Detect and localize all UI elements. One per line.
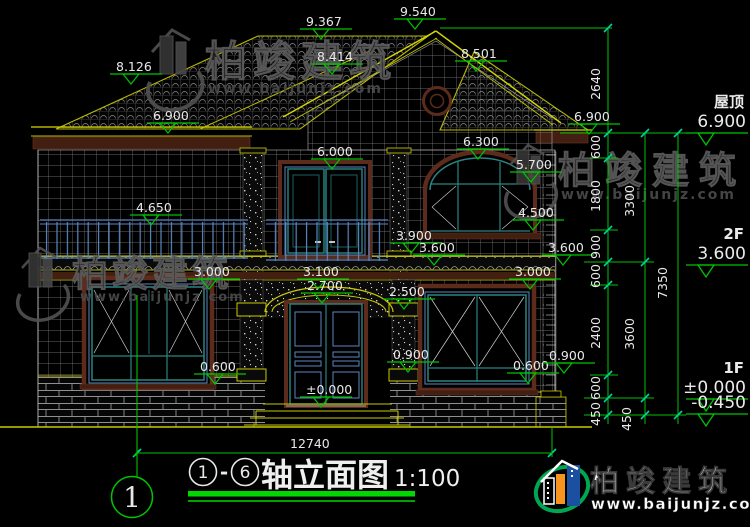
window-1f-right	[416, 286, 538, 395]
eave-fascia-left	[33, 137, 250, 149]
level-marker-label: 6.000	[317, 144, 353, 159]
chain-dim-label: 450	[619, 407, 634, 431]
level-marker-label: 3.000	[515, 264, 551, 279]
chain-dim-label: 600	[588, 264, 603, 288]
logo-building-white	[544, 478, 554, 504]
chain-dim-label: 600	[588, 376, 603, 400]
storey-floor-label: 屋顶	[714, 93, 744, 111]
level-marker-label: 0.900	[549, 348, 585, 363]
brand-logo: 柏竣建筑 www.baijunjz.com	[529, 459, 750, 519]
title-block: 1 - 6 轴立面图 1:100	[188, 456, 460, 501]
logo-url: www.baijunjz.com	[591, 495, 750, 513]
overall-width-label: 12740	[290, 436, 330, 451]
level-marker: 8.126	[110, 59, 162, 84]
title-separator: -	[220, 460, 228, 484]
level-marker-label: 4.650	[136, 200, 172, 215]
level-marker-label: 9.367	[306, 14, 342, 29]
watermark-name: 柏竣建筑	[205, 37, 397, 86]
window-sill	[80, 384, 216, 389]
level-marker-label: 3.100	[303, 264, 339, 279]
window-sill	[419, 233, 541, 239]
railing-center	[266, 220, 388, 261]
storey-floor-label: 2F	[723, 225, 744, 243]
level-marker-label: 6.300	[463, 134, 499, 149]
watermark-name: 柏竣建筑	[558, 149, 746, 192]
chain-dim-label: 3600	[622, 318, 637, 350]
level-marker-label: 6.900	[153, 108, 189, 123]
chain-dim-label: 2640	[588, 68, 603, 100]
level-marker-label: 3.600	[419, 240, 455, 255]
chain-dim-label: 7350	[655, 267, 670, 299]
elevation-drawing: 柏竣建筑 www.baijunjz.com 柏竣建筑 www.baijunjz.…	[0, 0, 750, 527]
title-underline-thick	[188, 491, 415, 497]
level-marker-label: 0.600	[200, 359, 236, 374]
chain-dim-label: 2400	[588, 317, 603, 349]
level-marker-label: 2.500	[389, 284, 425, 299]
storey-level-marker: -0.450	[686, 393, 748, 426]
brick-wall-right	[407, 393, 555, 427]
storey-level-value: 6.900	[697, 112, 746, 132]
level-marker-label: 8.414	[317, 49, 353, 64]
level-marker: 9.540	[394, 4, 446, 29]
logo-name: 柏竣建筑	[590, 464, 734, 498]
logo-building-blue	[567, 465, 580, 506]
storey-level-value: 3.600	[697, 244, 746, 264]
watermark-url: www.baijunjz.com	[208, 81, 383, 97]
level-marker-label: 3.000	[194, 264, 230, 279]
level-marker-label: 5.700	[516, 157, 552, 172]
storey-level-marker: 3.6002F	[686, 225, 748, 277]
bottom-dimension: 12740	[137, 427, 552, 457]
storey-level-marker: 6.900屋顶	[686, 93, 748, 145]
level-marker-label: ±0.000	[306, 382, 352, 397]
chain-dim-label: 600	[588, 135, 603, 159]
storey-floor-label: 1F	[723, 359, 744, 377]
title-scale: 1:100	[394, 466, 460, 492]
logo-building-orange	[556, 474, 565, 504]
level-marker-label: 8.126	[116, 59, 152, 74]
storey-level-value: -0.450	[691, 393, 746, 413]
level-marker-label: 0.900	[393, 347, 429, 362]
chain-dim-label: 900	[588, 235, 603, 259]
watermark-url: www.baijunjz.com	[80, 290, 245, 305]
level-marker-label: 0.600	[513, 358, 549, 373]
chain-dim-label: 3300	[622, 185, 637, 217]
title-axis-start: 1	[198, 463, 209, 483]
level-marker: 9.367	[300, 14, 352, 39]
title-axis-end: 6	[240, 463, 251, 483]
chain-dim-label: 450	[588, 402, 603, 426]
level-marker-label: 8.501	[461, 46, 497, 61]
level-marker-label: 4.500	[518, 205, 554, 220]
window-sill	[416, 390, 538, 395]
level-marker-label: 6.900	[574, 109, 610, 124]
title-name: 轴立面图	[261, 456, 389, 494]
corner-quoins	[543, 152, 556, 427]
level-marker-label: 3.600	[548, 240, 584, 255]
chain-dim-label: 1800	[588, 180, 603, 212]
axis-bubble-label: 1	[123, 481, 141, 514]
level-marker-label: 2.700	[307, 278, 343, 293]
gable-vent-circle	[424, 88, 451, 115]
level-marker-label: 9.540	[400, 4, 436, 19]
